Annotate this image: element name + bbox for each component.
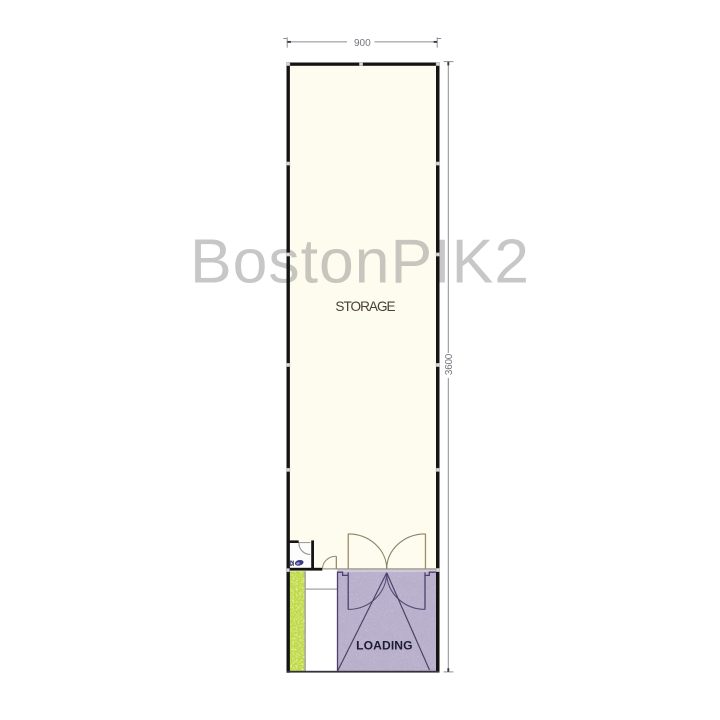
svg-text:LOADING: LOADING [356, 639, 412, 653]
svg-text:BostonPIK2: BostonPIK2 [190, 227, 530, 297]
svg-text:STORAGE: STORAGE [335, 299, 395, 314]
svg-text:3600: 3600 [444, 353, 455, 375]
svg-text:900: 900 [354, 38, 371, 49]
